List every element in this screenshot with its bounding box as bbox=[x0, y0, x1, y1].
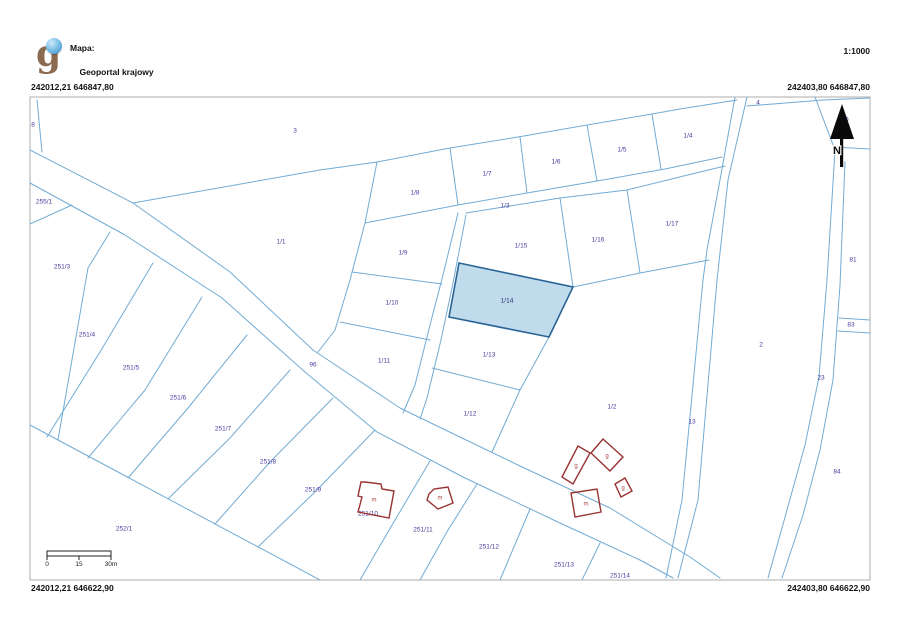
parcel-number-label: 1/1 bbox=[276, 239, 285, 246]
parcel-number-label: 13 bbox=[688, 419, 696, 426]
parcel-number-label: 4 bbox=[756, 100, 760, 107]
cadastral-map-canvas[interactable]: 83255/1251/31/1251/4251/5251/6251/796251… bbox=[0, 0, 900, 636]
parcel-number-label: 1/3 bbox=[500, 203, 509, 210]
parcel-number-label: 1/2 bbox=[607, 404, 616, 411]
parcel-number-label: 251/4 bbox=[79, 332, 96, 339]
parcel-number-label: 1/8 bbox=[410, 190, 419, 197]
parcel-number-label: 1/16 bbox=[592, 237, 605, 244]
parcel-number-label: 1/7 bbox=[482, 171, 491, 178]
parcel-number-label: 251/3 bbox=[54, 264, 71, 271]
parcel-number-label: 1/11 bbox=[378, 358, 391, 365]
building-type-label: m bbox=[438, 496, 443, 502]
parcel-number-label: 251/13 bbox=[554, 562, 574, 569]
parcel-number-label: 84 bbox=[833, 469, 841, 476]
parcel-number-label: 251/11 bbox=[413, 527, 433, 534]
map-border bbox=[30, 97, 870, 580]
parcel-number-label: 96 bbox=[309, 362, 317, 369]
building-type-label: g bbox=[574, 464, 577, 470]
parcel-number-label: 1/10 bbox=[386, 300, 399, 307]
highlighted-parcel-label: 1/14 bbox=[501, 298, 514, 305]
parcel-number-label: 1/5 bbox=[617, 147, 626, 154]
parcel-number-label: 1/17 bbox=[666, 221, 679, 228]
parcel-number-label: 1/13 bbox=[483, 352, 496, 359]
parcel-number-label: 1/9 bbox=[398, 250, 407, 257]
parcel-number-label: 2 bbox=[759, 342, 763, 349]
parcel-number-label: 251/14 bbox=[610, 573, 630, 580]
parcel-number-label: 251/8 bbox=[260, 459, 277, 466]
north-arrow-letter: N bbox=[833, 145, 841, 157]
parcel-number-label: 83 bbox=[847, 322, 855, 329]
parcel-number-label: 251/5 bbox=[123, 365, 140, 372]
parcel-number-label: 1/6 bbox=[551, 159, 560, 166]
scale-bar-tick-0: 0 bbox=[45, 561, 49, 568]
building-type-label: g bbox=[621, 486, 624, 492]
parcel-number-label: 251/9 bbox=[305, 487, 322, 494]
scale-bar-tick-30m: 30m bbox=[105, 561, 118, 568]
parcel-number-label: 251/6 bbox=[170, 395, 187, 402]
building-type-label: m bbox=[584, 502, 589, 508]
parcel-number-label: 252/1 bbox=[116, 526, 133, 533]
parcel-number-label: 3 bbox=[293, 128, 297, 135]
parcel-number-label: 1/12 bbox=[464, 411, 477, 418]
parcel-number-label: 81 bbox=[849, 257, 857, 264]
geoportal-print-page: g Mapa: Geoportal krajowy 1:1000 242012,… bbox=[0, 0, 900, 636]
parcel-number-label: 8 bbox=[31, 122, 35, 129]
parcel-number-label: 251/12 bbox=[479, 544, 499, 551]
parcel-number-label: 1/15 bbox=[515, 243, 528, 250]
parcel-number-label: 23 bbox=[817, 375, 825, 382]
parcel-number-label: 1/4 bbox=[683, 133, 692, 140]
building-type-label: m bbox=[372, 498, 377, 504]
parcel-number-label: 251/7 bbox=[215, 426, 232, 433]
parcel-number-label: 255/1 bbox=[36, 199, 53, 206]
scale-bar-tick-15: 15 bbox=[75, 561, 83, 568]
building-type-label: g bbox=[605, 454, 608, 460]
